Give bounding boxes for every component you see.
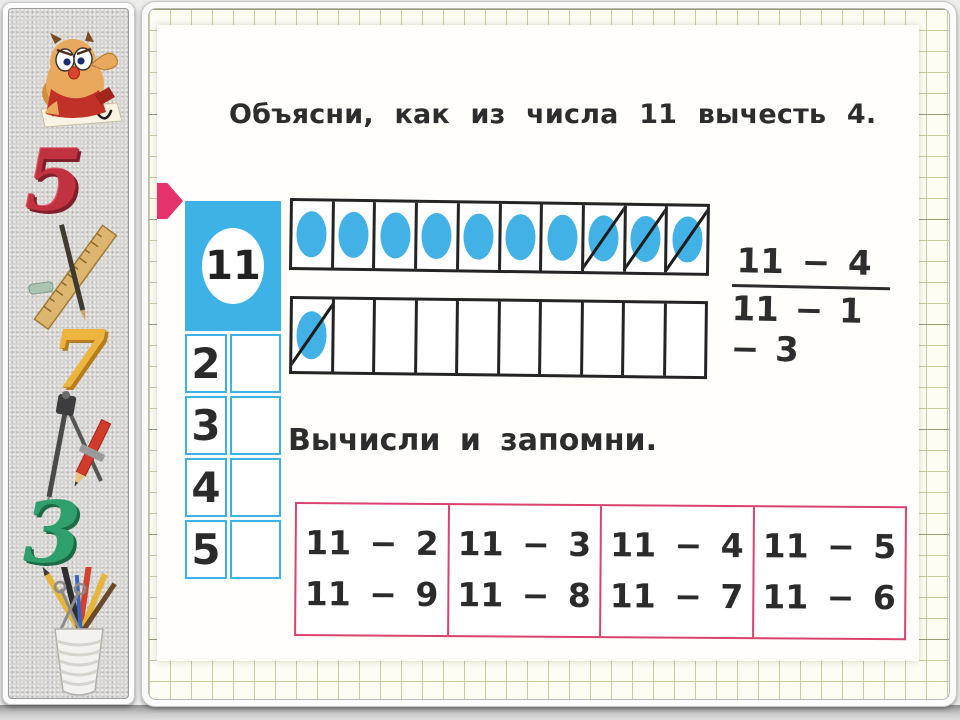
expression: 11 − 8 [457, 574, 591, 618]
graph-paper-background: Объясни, как из числа 11 вычесть 4. 11 2… [148, 8, 950, 700]
decorative-digit-seven: 7 [51, 319, 107, 399]
number-table-row: 3 [185, 396, 281, 455]
expression-11-minus-1-minus-3: 11 − 1 − 3 [730, 289, 900, 373]
memorize-column: 11 − 211 − 9 [296, 504, 447, 635]
decorative-digit-three: 3 [23, 491, 81, 575]
counting-cell [538, 302, 580, 375]
counting-cell [581, 205, 624, 272]
memorize-heading: Вычисли и запомни. [288, 423, 657, 458]
task-title: Объясни, как из числа 11 вычесть 4. [229, 99, 876, 130]
number-table-row: 4 [185, 458, 281, 517]
subtraction-explanation: 11 − 4 11 − 1 − 3 [730, 241, 901, 372]
counter-dot [297, 211, 328, 257]
slide-frame: Объясни, как из числа 11 вычесть 4. 11 2… [141, 1, 957, 707]
counting-cell [372, 300, 414, 373]
counting-cell [292, 299, 331, 371]
counting-cell [455, 301, 497, 374]
counting-cell [372, 202, 415, 269]
number-table-header-value: 11 [202, 228, 264, 304]
number-table-empty-cell [230, 458, 281, 517]
counter-dot [338, 212, 369, 258]
decorative-sidebar: 5 7 [2, 2, 135, 705]
number-table-row: 5 [185, 520, 281, 579]
counter-dot [422, 213, 453, 259]
slide-bottom-shadow [0, 705, 960, 720]
owl-mascot-icon [21, 29, 129, 129]
counter-dot [505, 214, 536, 260]
counting-cell [663, 304, 705, 377]
number-table-header: 11 [185, 201, 281, 331]
counting-cell [580, 303, 622, 376]
counting-cell [623, 206, 666, 273]
number-table-number: 5 [185, 520, 227, 579]
expression: 11 − 9 [305, 573, 439, 617]
memorize-column: 11 − 311 − 8 [447, 505, 600, 636]
counting-cell [539, 204, 582, 271]
expression: 11 − 2 [305, 522, 439, 566]
bookmark-arrow-icon [157, 183, 183, 219]
number-table-number: 3 [185, 396, 227, 455]
counting-cell [414, 301, 456, 374]
sidebar-texture: 5 7 [8, 8, 129, 699]
counter-dot [547, 215, 578, 261]
expression: 11 − 3 [458, 523, 592, 567]
expression: 11 − 5 [763, 525, 897, 569]
number-composition-table: 11 2345 [185, 201, 281, 579]
counting-cell [621, 303, 663, 376]
number-table-empty-cell [230, 334, 281, 393]
number-table-rows: 2345 [185, 334, 281, 579]
number-table-empty-cell [230, 396, 281, 455]
textbook-page: Объясни, как из числа 11 вычесть 4. 11 2… [157, 25, 919, 661]
counter-dot [463, 213, 494, 259]
counting-cell [331, 300, 373, 373]
counting-cell [497, 302, 539, 375]
expression-11-minus-4: 11 − 4 [736, 241, 901, 284]
decorative-digit-five: 5 [25, 139, 83, 223]
counting-cell [664, 206, 707, 273]
expression: 11 − 4 [610, 524, 744, 568]
counting-strip-top [289, 198, 710, 276]
counting-cell [292, 201, 332, 268]
expression: 11 − 6 [762, 576, 896, 620]
counter-dot [380, 212, 411, 258]
number-table-empty-cell [230, 520, 281, 579]
number-table-number: 4 [185, 458, 227, 517]
expression: 11 − 7 [610, 575, 744, 619]
memorize-column: 11 − 511 − 6 [752, 507, 905, 638]
memorize-table: 11 − 211 − 911 − 311 − 811 − 411 − 711 −… [294, 502, 907, 640]
counting-cell [498, 204, 541, 271]
counting-cell [331, 202, 374, 269]
counting-strip-bottom [289, 296, 708, 379]
number-table-row: 2 [185, 334, 281, 393]
counting-cell [414, 203, 457, 270]
number-table-number: 2 [185, 334, 227, 393]
memorize-column: 11 − 411 − 7 [599, 506, 752, 637]
pencil-cup-icon [27, 567, 129, 699]
counting-cell [456, 203, 499, 270]
